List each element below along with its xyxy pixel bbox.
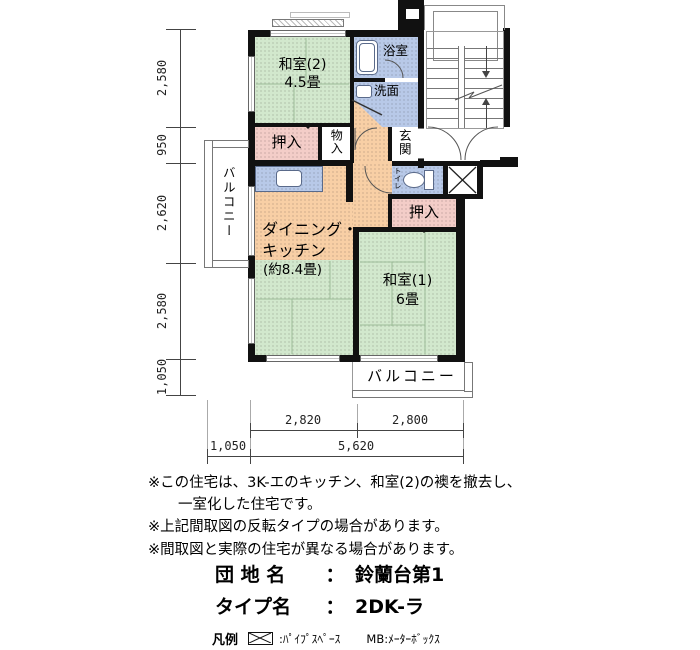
washitsu2-name-label: 和室(2) [255, 58, 350, 73]
dim-line-bottom-2 [207, 456, 464, 457]
hall-door-arc [355, 128, 377, 150]
dim-left-4: 2,580 [155, 281, 169, 341]
dim-left-3: 2,620 [155, 183, 169, 243]
washroom-label: 洗面 [374, 84, 399, 98]
toilet-bowl-icon [403, 172, 425, 188]
legend-meter-box-label: MB:ﾒｰﾀｰﾎﾞｯｸｽ [366, 631, 439, 647]
dim-left-1: 2,580 [155, 48, 169, 108]
stair-break-line [455, 85, 502, 100]
dim-line-left [180, 29, 181, 395]
dk-label-line1: ダイニング・ [262, 221, 358, 239]
note-line-1: ※この住宅は、3K-エのキッチン、和室(2)の襖を撤去し、 [148, 471, 521, 492]
dim-tick [463, 449, 464, 464]
legend-row: 凡例 :ﾊﾟｲﾌﾟｽﾍﾟｰｽ MB:ﾒｰﾀｰﾎﾞｯｸｽ [212, 629, 440, 648]
legend-pipe-space-box-icon [248, 632, 273, 645]
note-line-2: 一室化した住宅です。 [178, 493, 322, 514]
entrance-label: 玄関 [397, 129, 411, 156]
dim-tick [166, 263, 196, 264]
type-name-separator: ： [315, 592, 355, 619]
dim-bottom-2820: 2,820 [273, 413, 333, 427]
balcony-bottom-label: バルコニー [352, 368, 472, 385]
type-name-value: 2DK-ラ [355, 592, 424, 619]
entry-door-arc-left [428, 127, 461, 160]
legend-pipe-space-label: :ﾊﾟｲﾌﾟｽﾍﾟｰｽ [279, 631, 340, 647]
toilet-label: トイレ [393, 167, 401, 190]
washroom-diagonal-wall [352, 100, 382, 115]
dim-left-2: 950 [155, 115, 169, 175]
washitsu1-size-label: 6畳 [359, 293, 456, 308]
dim-bottom-5620: 5,620 [326, 439, 386, 453]
estate-name-label: 団 地 名 [215, 560, 315, 587]
washbasin-icon [356, 85, 372, 98]
toilet-door-arc [365, 166, 392, 193]
storage-label: 物入 [329, 129, 342, 155]
legend-x-icon [249, 633, 271, 643]
bath-door-arc [385, 60, 403, 78]
dim-tick [166, 395, 196, 396]
dim-left-5: 1,050 [155, 347, 169, 407]
bathtub-inner [359, 43, 375, 72]
closet-top-label: 押入 [255, 134, 318, 151]
dim-tick [463, 423, 464, 438]
washitsu1-name-label: 和室(1) [359, 274, 456, 290]
dim-bottom-1050: 1,050 [198, 439, 258, 453]
dim-bottom-2800: 2,800 [380, 413, 440, 427]
closet-right-label: 押入 [392, 204, 456, 221]
dk-size-label: (約8.4畳) [263, 263, 322, 278]
dk-label-line2: キッチン [262, 242, 326, 260]
balcony-left-label: バルコニー [221, 166, 235, 239]
pipe-space-x-icon [449, 167, 476, 193]
dim-tick [166, 163, 196, 164]
dim-tick [166, 29, 196, 30]
legend-title: 凡例 [212, 629, 238, 648]
note-line-3: ※上記間取図の反転タイプの場合があります。 [148, 515, 449, 536]
floor-plan-page: 和室(2) 4.5畳 浴室 洗面 押入 物入 玄関 トイレ 押入 ダイニング・ … [0, 0, 700, 650]
estate-name-separator: ： [315, 560, 355, 587]
washitsu2-size-label: 4.5畳 [255, 76, 350, 91]
type-name-row: タイプ名 ： 2DK-ラ [215, 592, 424, 619]
toilet-tank-icon [424, 170, 434, 190]
dim-tick [357, 423, 358, 438]
entry-door-arc-right [465, 127, 498, 160]
estate-name-value: 鈴蘭台第1 [355, 560, 444, 587]
dim-tick [250, 423, 251, 438]
note-line-4: ※間取図と実際の住宅が異なる場合があります。 [148, 538, 463, 559]
dim-tick [166, 127, 196, 128]
type-name-label: タイプ名 [215, 592, 315, 619]
dim-tick [166, 359, 196, 360]
bath-label: 浴室 [383, 44, 408, 58]
estate-name-row: 団 地 名 ： 鈴蘭台第1 [215, 560, 444, 587]
